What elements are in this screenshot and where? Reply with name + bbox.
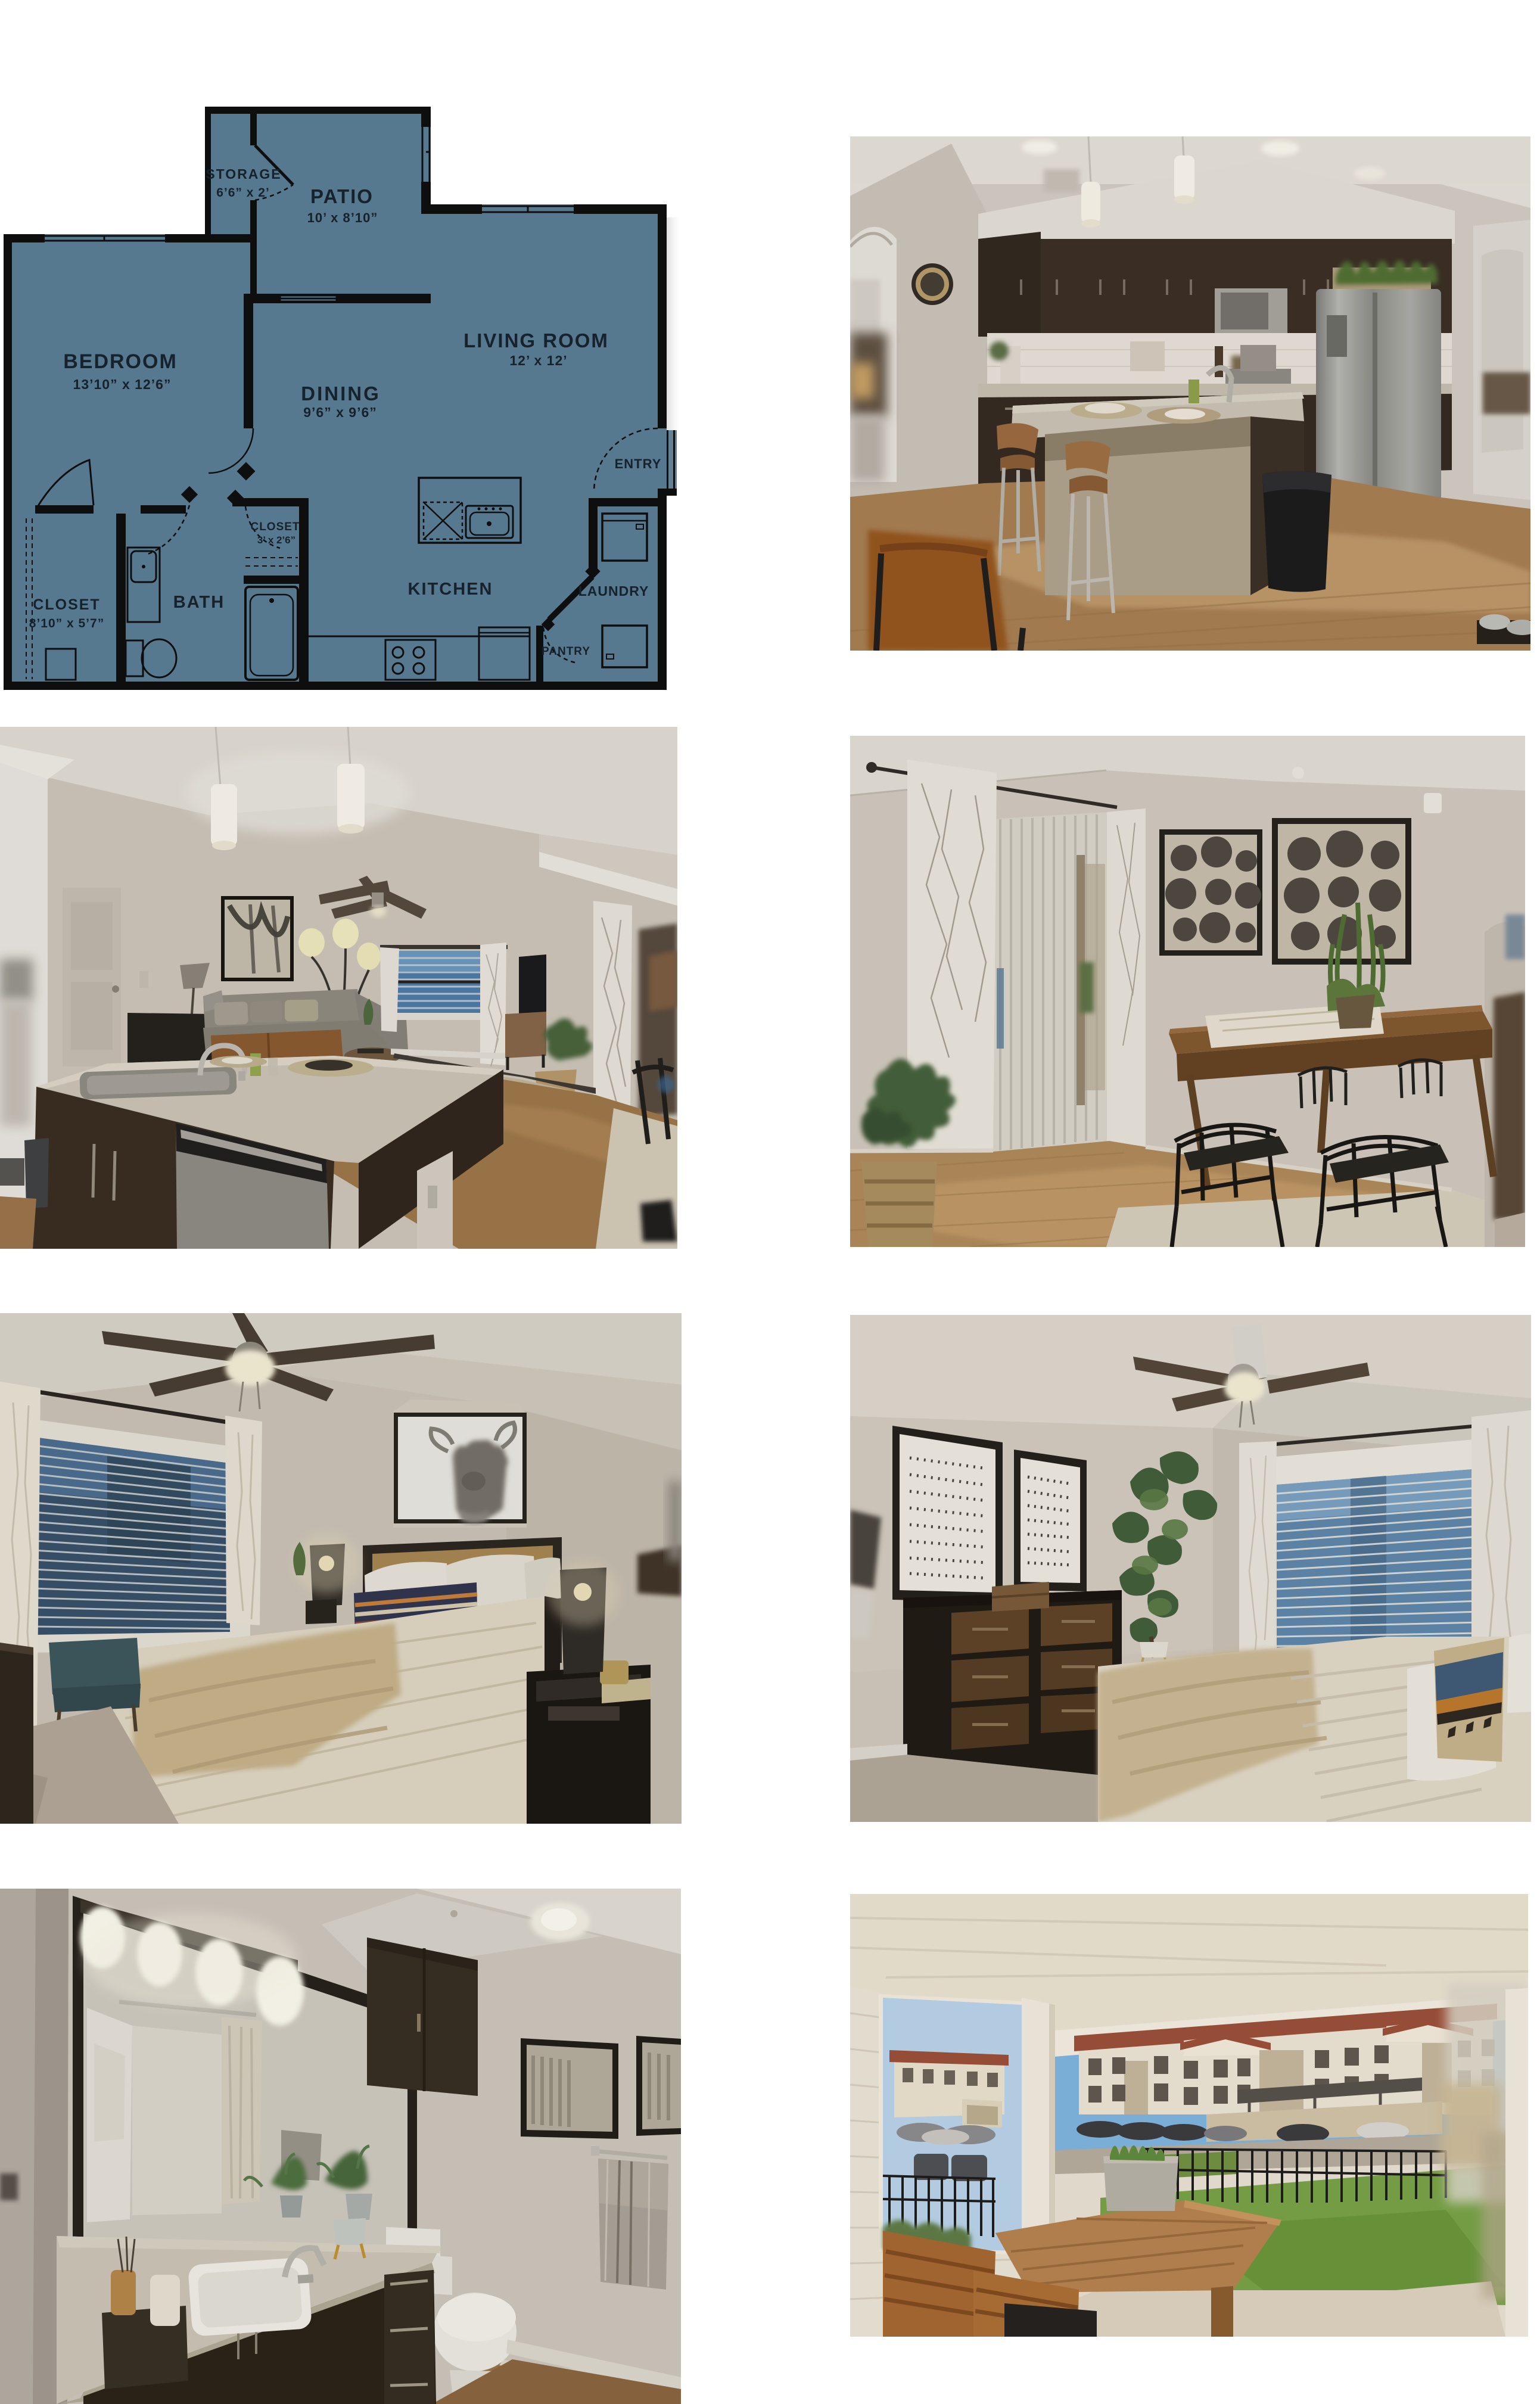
svg-text:ENTRY: ENTRY bbox=[615, 456, 662, 471]
svg-text:10’ x 8’10”: 10’ x 8’10” bbox=[307, 210, 378, 225]
svg-text:8’10” x 5’7”: 8’10” x 5’7” bbox=[29, 617, 104, 630]
svg-text:CLOSET: CLOSET bbox=[250, 521, 300, 533]
svg-text:PANTRY: PANTRY bbox=[542, 645, 590, 658]
svg-text:LAUNDRY: LAUNDRY bbox=[578, 583, 649, 599]
svg-text:9’6” x 9’6”: 9’6” x 9’6” bbox=[303, 405, 377, 420]
svg-text:PATIO: PATIO bbox=[310, 185, 374, 207]
svg-text:KITCHEN: KITCHEN bbox=[408, 580, 493, 599]
svg-text:6’6” x 2’: 6’6” x 2’ bbox=[216, 186, 270, 200]
svg-text:BEDROOM: BEDROOM bbox=[63, 350, 178, 373]
svg-text:DINING: DINING bbox=[301, 382, 381, 405]
svg-text:12’ x 12’: 12’ x 12’ bbox=[509, 353, 567, 368]
svg-text:BATH: BATH bbox=[173, 593, 225, 612]
svg-text:STORAGE: STORAGE bbox=[206, 166, 281, 182]
svg-text:CLOSET: CLOSET bbox=[33, 596, 100, 613]
svg-text:13’10” x 12’6”: 13’10” x 12’6” bbox=[73, 377, 172, 392]
svg-text:LIVING ROOM: LIVING ROOM bbox=[463, 329, 609, 352]
svg-text:3’ x 2’6”: 3’ x 2’6” bbox=[257, 534, 295, 546]
